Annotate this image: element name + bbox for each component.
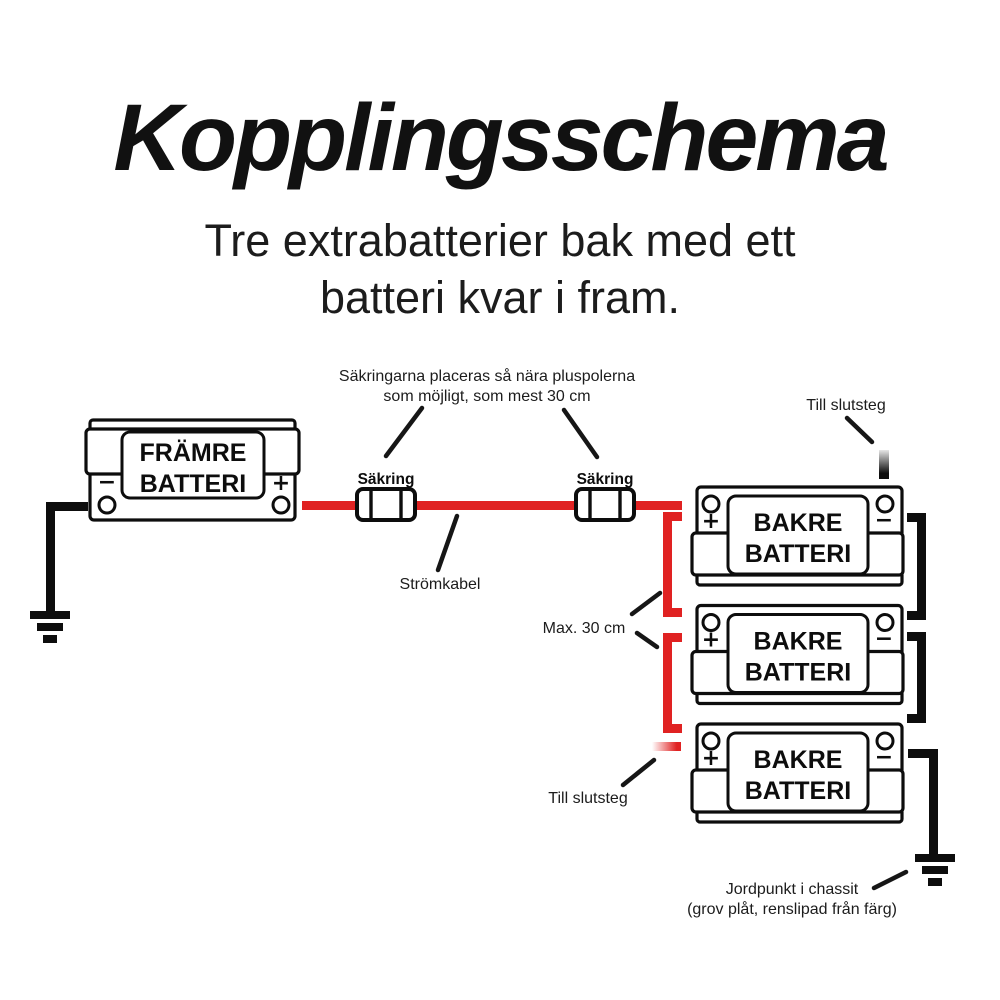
rear-ground-wire-v [929, 749, 938, 856]
rear-battery-name-line1: BAKRE [754, 509, 843, 537]
black-amp-feed-stub [879, 450, 889, 479]
rear-battery-plus-sign: + [702, 628, 720, 653]
fuse-2-label: Säkring [577, 471, 634, 488]
red-jumper1-bar [663, 512, 672, 617]
jordpunkt-label-line1: Jordpunkt i chassit [726, 881, 859, 898]
ground-bar-wide [30, 611, 70, 619]
black-jumper2-bar [917, 632, 926, 723]
fuse-note-line2: som möjligt, som mest 30 cm [383, 388, 590, 405]
rear-battery-name-line1: BAKRE [754, 628, 843, 656]
till-slutsteg-top-label: Till slutsteg [806, 397, 885, 414]
rear-battery-3: + − BAKRE BATTERI [692, 724, 903, 822]
fuse-note-line1: Säkringarna placeras så nära pluspolerna [339, 367, 635, 385]
rear-battery-2: + − BAKRE BATTERI [692, 606, 903, 704]
max-30cm-pointer-lower [637, 633, 657, 647]
rear-battery-minus-sign: − [875, 627, 893, 652]
till-slutsteg-bottom-pointer [623, 760, 654, 785]
black-jumper2-bottom-stub [907, 714, 926, 723]
fuse-2: Säkring [576, 471, 634, 520]
jordpunkt-label-line2: (grov plåt, renslipad från färg) [687, 900, 897, 918]
fuse-note-pointer-right [564, 410, 597, 457]
ground-icon-chassis [915, 854, 955, 886]
rear-battery-name-line2: BATTERI [745, 777, 851, 805]
ground-bar-small [928, 878, 942, 886]
rear-battery-plus-sign: + [702, 746, 720, 771]
rear-battery-name-line2: BATTERI [745, 540, 851, 568]
fuse-1: Säkring [357, 471, 415, 520]
fuse-2-body [576, 489, 634, 520]
front-battery-minus-post [99, 497, 115, 513]
red-jumper2-bottom-stub [663, 724, 682, 733]
front-battery-name-line1: FRÄMRE [140, 439, 247, 467]
rear-battery-minus-sign: − [875, 745, 893, 770]
red-amp-feed-stub [652, 742, 681, 751]
front-battery-minus-sign: − [98, 470, 116, 495]
front-battery-plus-post [273, 497, 289, 513]
rear-battery-name-line1: BAKRE [754, 746, 843, 774]
rear-battery-name-line2: BATTERI [745, 659, 851, 687]
ground-bar-small [43, 635, 57, 643]
front-ground-wire-v [46, 502, 55, 613]
red-jumper1-bottom-stub [663, 608, 682, 617]
red-jumper2-bar [663, 633, 672, 733]
jordpunkt-pointer [874, 872, 906, 888]
wiring-diagram-poster: Kopplingsschema Tre extrabatterier bak m… [0, 0, 1000, 1000]
front-battery-plus-sign: + [272, 471, 290, 496]
fuse-1-label: Säkring [358, 471, 415, 488]
fuse-1-body [357, 489, 415, 520]
till-slutsteg-top-pointer [847, 418, 872, 442]
rear-battery-plus-sign: + [702, 509, 720, 534]
ground-icon-front [30, 611, 70, 643]
stromkabel-label: Strömkabel [400, 576, 481, 593]
front-battery: FRÄMRE BATTERI − + [86, 420, 299, 520]
ground-bar-mid [37, 623, 63, 631]
front-battery-name-line2: BATTERI [140, 470, 246, 498]
ground-bar-mid [922, 866, 948, 874]
diagram: FRÄMRE BATTERI − + Säkring Säkring [0, 0, 1000, 1000]
max-30cm-pointer-upper [632, 593, 660, 614]
till-slutsteg-bottom-label: Till slutsteg [548, 790, 627, 807]
ground-bar-wide [915, 854, 955, 862]
black-jumper1-bar [917, 513, 926, 620]
stromkabel-pointer [438, 516, 457, 570]
max-30cm-label: Max. 30 cm [543, 620, 626, 637]
black-jumper1-bottom-stub [907, 611, 926, 620]
rear-battery-minus-sign: − [875, 508, 893, 533]
rear-battery-1: + − BAKRE BATTERI [692, 487, 903, 585]
fuse-note-pointer-left [386, 408, 422, 456]
